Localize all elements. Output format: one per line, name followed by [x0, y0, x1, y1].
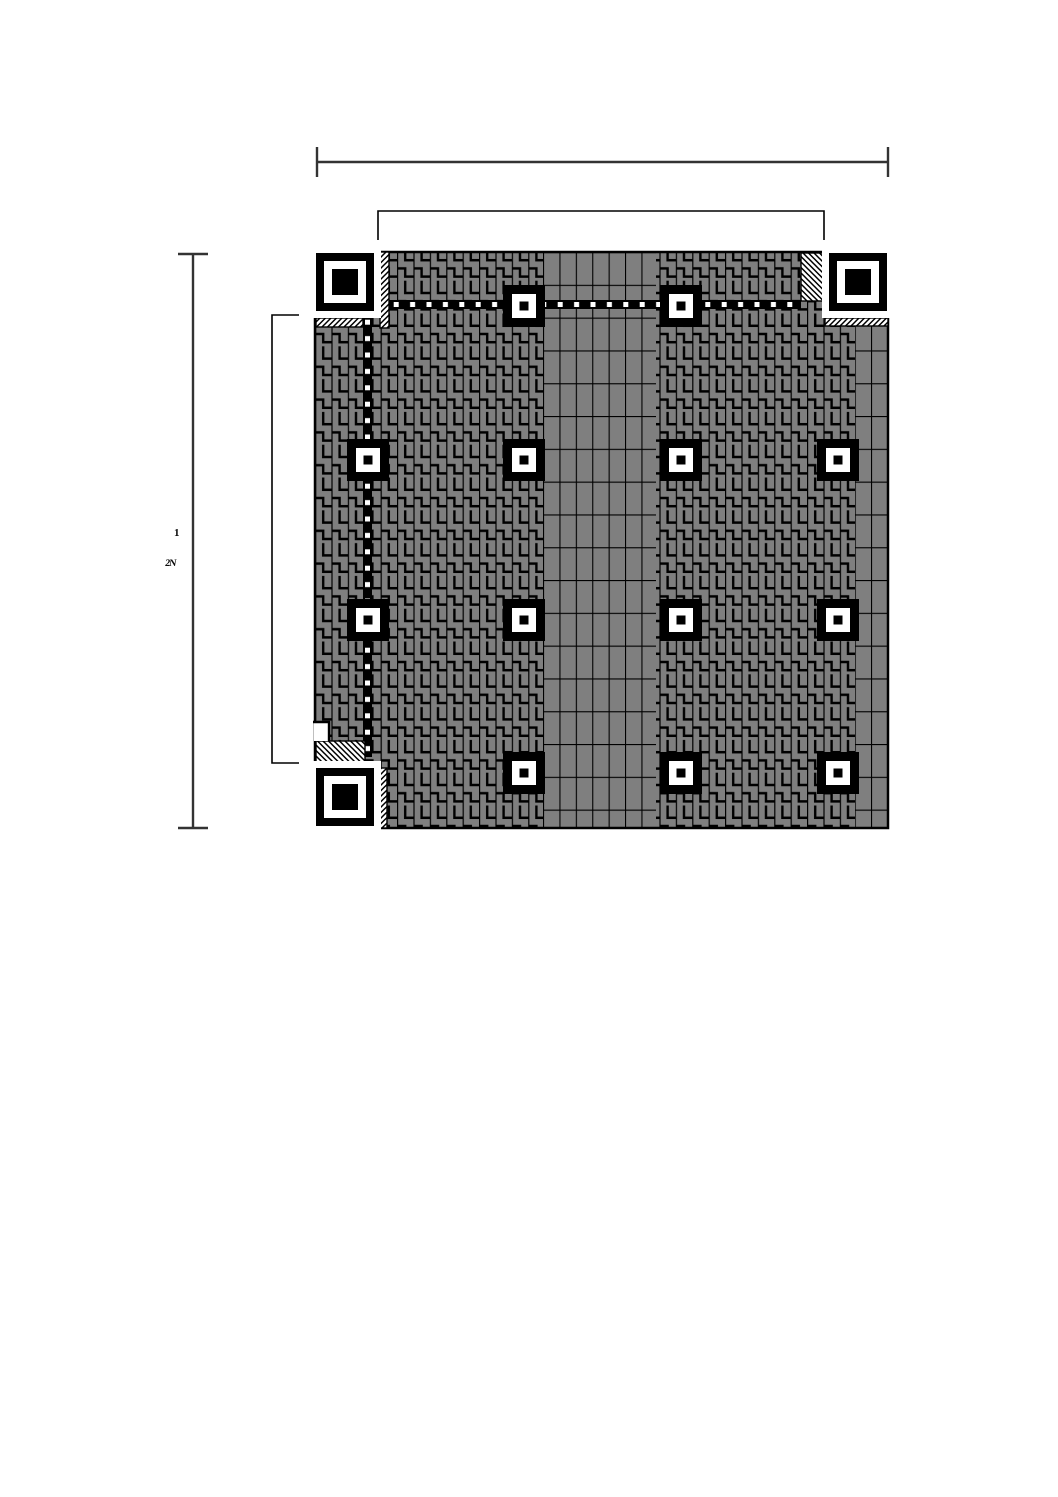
qr-symbol-structure-diagram: [0, 0, 1058, 1497]
finder-core-square: [332, 269, 358, 295]
alignment-pattern-9: [660, 599, 702, 641]
page-canvas: 1 2N: [0, 0, 1058, 1497]
finder-pattern-top-left: [309, 246, 381, 318]
alignment-pattern-13: [817, 752, 859, 794]
version-info-top-right: [801, 253, 825, 301]
alignment-core-square: [834, 616, 843, 625]
alignment-core-square: [364, 456, 373, 465]
left-dimension-line: [178, 254, 208, 828]
alignment-pattern-12: [660, 752, 702, 794]
alignment-core-square: [520, 616, 529, 625]
white-notch-module: [314, 722, 329, 741]
format-info-top-right-horizontal: [825, 318, 888, 326]
finder-core-square: [845, 269, 871, 295]
format-info-top-left-vertical: [380, 252, 389, 328]
codeword-band-center: [543, 252, 656, 828]
alignment-core-square: [677, 769, 686, 778]
codeword-band-right-edge: [855, 319, 888, 828]
alignment-pattern-7: [347, 599, 389, 641]
top-dimension-line: [317, 147, 888, 177]
alignment-pattern-1: [503, 285, 545, 327]
finder-pattern-top-right: [822, 246, 894, 318]
version-info-bottom-left: [316, 741, 365, 762]
alignment-core-square: [520, 302, 529, 311]
alignment-core-square: [834, 769, 843, 778]
alignment-core-square: [520, 769, 529, 778]
alignment-core-square: [677, 616, 686, 625]
alignment-pattern-10: [817, 599, 859, 641]
alignment-pattern-11: [503, 752, 545, 794]
finder-core-square: [332, 784, 358, 810]
alignment-core-square: [364, 616, 373, 625]
timing-pattern-vertical: [363, 314, 372, 757]
top-bracket: [378, 211, 824, 240]
left-dimension-label-line2: 2N: [164, 559, 176, 569]
alignment-core-square: [677, 456, 686, 465]
alignment-pattern-3: [347, 439, 389, 481]
left-dimension-label-line1: 1: [174, 528, 180, 539]
format-info-top-left-horizontal: [316, 318, 363, 327]
alignment-core-square: [677, 302, 686, 311]
alignment-pattern-6: [817, 439, 859, 481]
alignment-pattern-8: [503, 599, 545, 641]
alignment-pattern-4: [503, 439, 545, 481]
alignment-core-square: [520, 456, 529, 465]
finder-pattern-bottom-left: [309, 761, 381, 833]
left-bracket: [272, 315, 299, 763]
alignment-pattern-2: [660, 285, 702, 327]
alignment-core-square: [834, 456, 843, 465]
alignment-pattern-5: [660, 439, 702, 481]
timing-pattern-horizontal: [388, 300, 801, 309]
